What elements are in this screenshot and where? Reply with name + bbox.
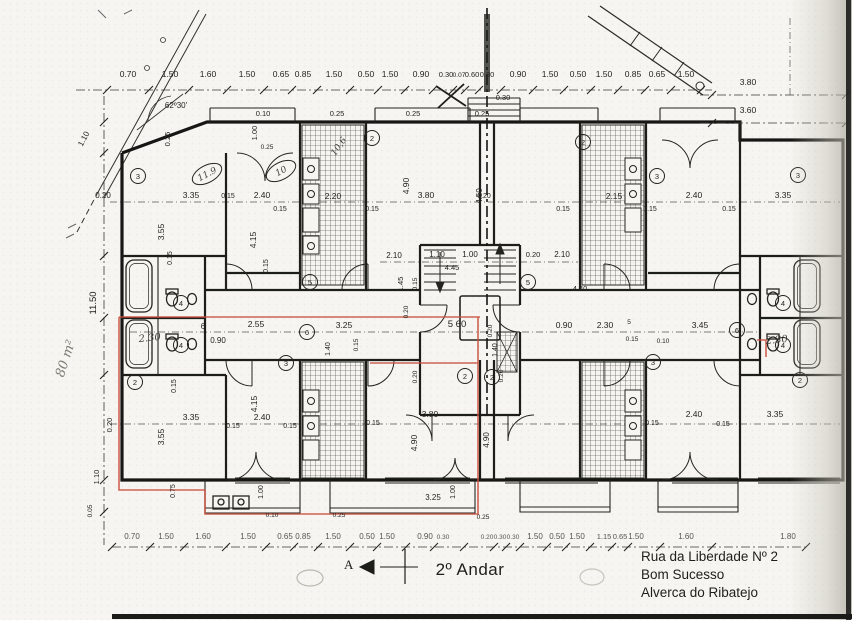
svg-text:3: 3 [284,359,288,368]
svg-text:1.00: 1.00 [450,485,457,499]
svg-text:1.15: 1.15 [597,532,612,541]
svg-text:0.30: 0.30 [496,93,511,102]
svg-text:1.50: 1.50 [239,69,256,79]
svg-text:0.65: 0.65 [649,69,666,79]
svg-text:1.45: 1.45 [396,277,405,292]
svg-text:4.90: 4.90 [401,177,411,194]
svg-text:0.30: 0.30 [494,534,507,541]
svg-text:0.15: 0.15 [167,251,174,265]
svg-text:4.15: 4.15 [248,231,258,248]
svg-text:1.50: 1.50 [678,69,695,79]
svg-text:0.85: 0.85 [625,69,642,79]
svg-text:0.15: 0.15 [716,421,730,428]
svg-text:4.45: 4.45 [445,263,460,272]
svg-text:0.15: 0.15 [365,206,379,213]
svg-text:2.10: 2.10 [386,251,402,260]
svg-text:3.35: 3.35 [183,190,200,200]
svg-text:5 60: 5 60 [448,319,467,330]
svg-text:0.20: 0.20 [526,250,541,259]
svg-text:0.50: 0.50 [570,69,587,79]
svg-text:3.35: 3.35 [767,409,784,419]
svg-text:2.40: 2.40 [254,412,271,422]
svg-text:3.35: 3.35 [183,412,200,422]
svg-text:0.85: 0.85 [295,69,312,79]
svg-text:0.25: 0.25 [406,109,421,118]
plan-title: 2º Andar [403,560,537,580]
bathroom-fixtures [126,260,820,509]
svg-text:6: 6 [201,322,206,331]
site-boundary-line [66,10,206,238]
svg-text:0.10: 0.10 [657,338,670,345]
svg-text:1.00: 1.00 [250,126,259,141]
svg-text:0.85: 0.85 [295,532,311,541]
svg-text:0.50: 0.50 [359,532,375,541]
kitchen-tile-hatch [302,125,644,478]
svg-text:1.50: 1.50 [379,532,395,541]
svg-text:3: 3 [796,171,800,180]
svg-text:2.15: 2.15 [606,191,623,201]
svg-text:6: 6 [735,326,739,335]
svg-text:0.90: 0.90 [556,320,573,330]
svg-text:0.15: 0.15 [226,423,240,430]
svg-text:2: 2 [581,138,585,147]
svg-text:0.15: 0.15 [353,338,360,351]
floor-plan-svg: 0.701.501.601.500.650.851.500.501.500.90… [0,0,852,620]
svg-text:0.10: 0.10 [266,512,279,519]
svg-text:0.70: 0.70 [120,69,137,79]
svg-text:0.15: 0.15 [626,336,639,343]
svg-text:2.40: 2.40 [254,190,271,200]
svg-text:1.10: 1.10 [429,250,445,259]
svg-text:0.15: 0.15 [283,423,297,430]
svg-text:1.50: 1.50 [596,69,613,79]
svg-text:0.50: 0.50 [549,532,565,541]
svg-text:0.25: 0.25 [163,132,172,147]
svg-text:2: 2 [133,378,137,387]
svg-text:3.60: 3.60 [740,105,757,115]
svg-text:4.50: 4.50 [475,188,484,204]
svg-text:0.25: 0.25 [477,514,490,521]
svg-text:3: 3 [136,172,140,181]
scan-edge-right [846,0,851,620]
svg-text:4.15: 4.15 [249,395,259,412]
svg-text:4: 4 [781,299,785,308]
svg-text:1.50: 1.50 [162,69,179,79]
svg-text:1.10: 1.10 [92,470,101,485]
svg-text:0.50: 0.50 [358,69,375,79]
svg-text:0.65: 0.65 [613,532,628,541]
svg-text:2: 2 [490,373,494,382]
svg-text:3.45: 3.45 [692,320,709,330]
svg-text:3.80: 3.80 [740,77,757,87]
svg-text:1.50: 1.50 [628,532,644,541]
svg-text:1.50: 1.50 [527,532,543,541]
svg-text:0.15: 0.15 [273,206,287,213]
svg-text:0.90: 0.90 [413,69,430,79]
svg-text:3.35: 3.35 [775,190,792,200]
elevator-shaft [460,296,500,340]
svg-text:1.50: 1.50 [158,532,174,541]
svg-text:11.50: 11.50 [88,291,99,314]
svg-text:0.15: 0.15 [556,206,570,213]
svg-text:0.25: 0.25 [475,109,490,118]
svg-text:0.20: 0.20 [487,324,494,337]
svg-text:0.20: 0.20 [481,534,494,541]
svg-text:3.80: 3.80 [418,190,435,200]
svg-text:4.90: 4.90 [409,434,419,451]
svg-text:0.20: 0.20 [403,305,410,318]
svg-text:1.60: 1.60 [195,532,211,541]
scan-edge-bottom [112,614,852,619]
svg-text:0.75: 0.75 [170,484,177,498]
svg-text:0.15: 0.15 [221,193,235,200]
svg-text:0.15: 0.15 [263,259,270,273]
svg-text:6: 6 [305,328,309,337]
svg-text:2.40: 2.40 [686,409,703,419]
svg-text:0.65: 0.65 [277,532,293,541]
address-line-3: Alverca do Ribatejo [641,584,778,602]
svg-text:2.20: 2.20 [325,191,342,201]
svg-text:3.55: 3.55 [156,223,166,240]
svg-text:0.30: 0.30 [439,70,454,79]
svg-text:1.50: 1.50 [542,69,559,79]
svg-text:2: 2 [798,376,802,385]
svg-text:1.00: 1.00 [258,485,265,499]
svg-text:1.50: 1.50 [240,532,256,541]
svg-text:0.20: 0.20 [105,418,114,433]
svg-text:1.50: 1.50 [326,69,343,79]
floor-plan-page: 0.701.501.601.500.650.851.500.501.500.90… [0,0,852,620]
svg-text:0.20: 0.20 [95,191,111,200]
svg-text:1.60: 1.60 [678,532,694,541]
french-door-bottom-center [433,458,477,480]
svg-text:2.10: 2.10 [554,250,570,259]
svg-text:4.90: 4.90 [482,432,491,448]
svg-text:2.40: 2.40 [686,190,703,200]
roof-ramp-structure [588,6,712,95]
svg-text:2.55: 2.55 [248,319,265,329]
svg-text:62º30': 62º30' [165,101,188,110]
french-door-top-right [662,140,718,168]
svg-text:4: 4 [179,299,183,308]
svg-text:0.15: 0.15 [171,379,178,393]
svg-text:3: 3 [651,358,655,367]
svg-text:1.80: 1.80 [780,532,796,541]
svg-text:4: 4 [179,341,183,350]
svg-text:5: 5 [308,278,312,287]
svg-text:0.25: 0.25 [333,512,346,519]
svg-text:0.15: 0.15 [366,420,380,427]
svg-text:5: 5 [526,278,530,287]
svg-text:4: 4 [781,341,785,350]
svg-text:3.25: 3.25 [336,320,353,330]
svg-text:1.50: 1.50 [382,69,399,79]
svg-text:2.30: 2.30 [597,320,614,330]
svg-text:3.55: 3.55 [156,428,166,445]
svg-text:3.80: 3.80 [422,409,439,419]
svg-text:0.20: 0.20 [412,370,419,383]
svg-text:0.90: 0.90 [510,69,527,79]
svg-text:2: 2 [370,134,374,143]
address-block: Rua da Liberdade Nº 2 Bom Sucesso Alverc… [641,548,778,602]
svg-text:0.70: 0.70 [124,532,140,541]
svg-text:0.30: 0.30 [480,70,495,79]
svg-text:3: 3 [655,172,659,181]
svg-text:0.15: 0.15 [412,277,419,290]
svg-text:0.15: 0.15 [643,206,657,213]
svg-text:0.15: 0.15 [722,206,736,213]
svg-text:2: 2 [463,372,467,381]
svg-text:0.30: 0.30 [437,534,450,541]
svg-text:0.65: 0.65 [273,69,290,79]
address-line-1: Rua da Liberdade Nº 2 [641,548,778,566]
svg-text:0.60: 0.60 [465,70,480,79]
section-letter: A [344,557,353,573]
svg-text:5: 5 [627,319,631,326]
address-line-2: Bom Sucesso [641,566,778,584]
svg-text:0.10: 0.10 [256,109,271,118]
svg-text:4.40: 4.40 [573,284,588,293]
svg-text:0.15: 0.15 [645,420,659,427]
french-door-bottom-right [662,452,718,480]
svg-text:1.00: 1.00 [462,250,478,259]
svg-text:10: 10 [274,165,289,179]
svg-text:1.40: 1.40 [492,343,499,357]
french-door-bottom-left [228,452,284,480]
svg-text:0.90: 0.90 [417,532,433,541]
svg-text:0.90: 0.90 [210,336,226,345]
svg-text:0.25: 0.25 [261,144,274,151]
svg-text:1.50: 1.50 [569,532,585,541]
svg-text:0.05: 0.05 [87,504,94,517]
svg-text:3.25: 3.25 [425,493,441,502]
svg-text:0.30: 0.30 [507,534,520,541]
svg-text:1.40: 1.40 [325,342,332,356]
svg-text:0.25: 0.25 [330,109,345,118]
svg-text:1.50: 1.50 [325,532,341,541]
svg-text:1.10: 1.10 [76,129,92,147]
svg-text:1.60: 1.60 [200,69,217,79]
